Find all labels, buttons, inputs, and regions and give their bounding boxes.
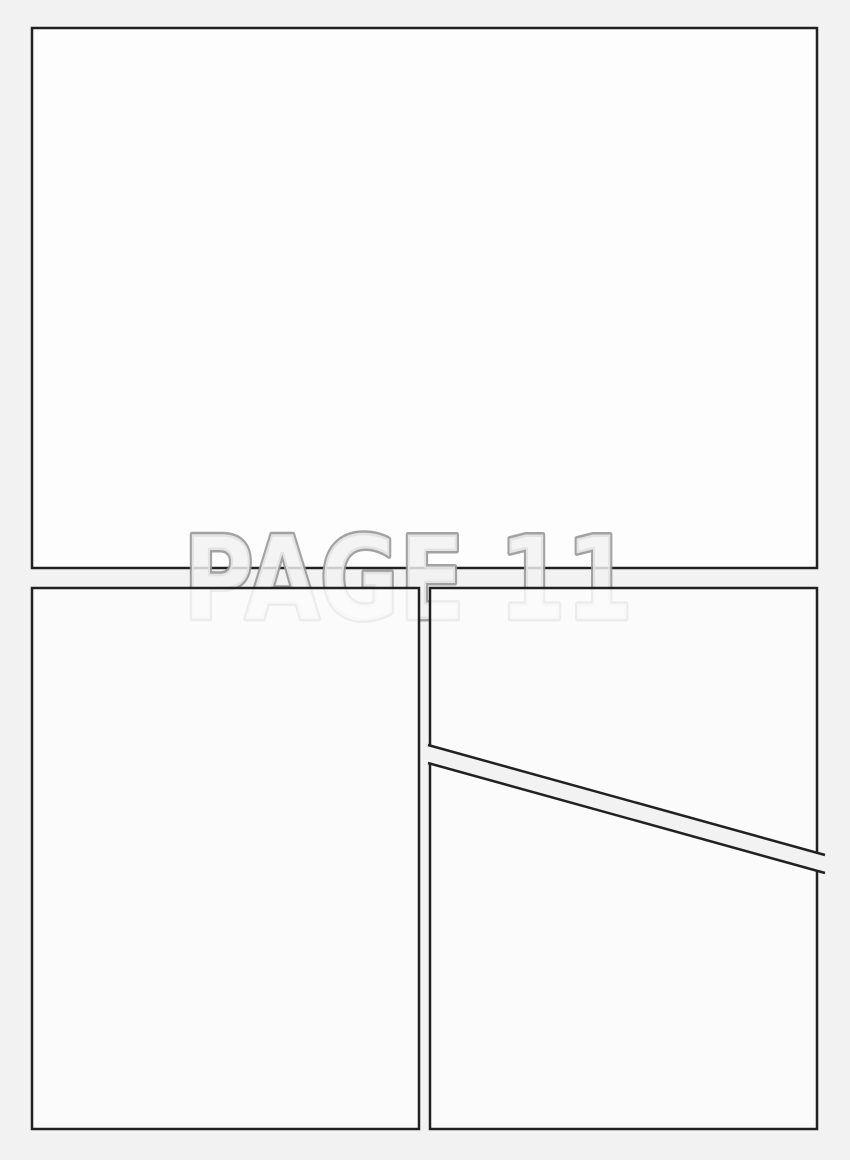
panel-bottom-left bbox=[32, 588, 419, 1129]
panel-right-column bbox=[430, 588, 817, 1129]
panel-top bbox=[32, 28, 817, 568]
comic-page-canvas: PAGE 11 bbox=[0, 0, 850, 1160]
comic-template-page: PAGE 11 bbox=[0, 0, 850, 1160]
